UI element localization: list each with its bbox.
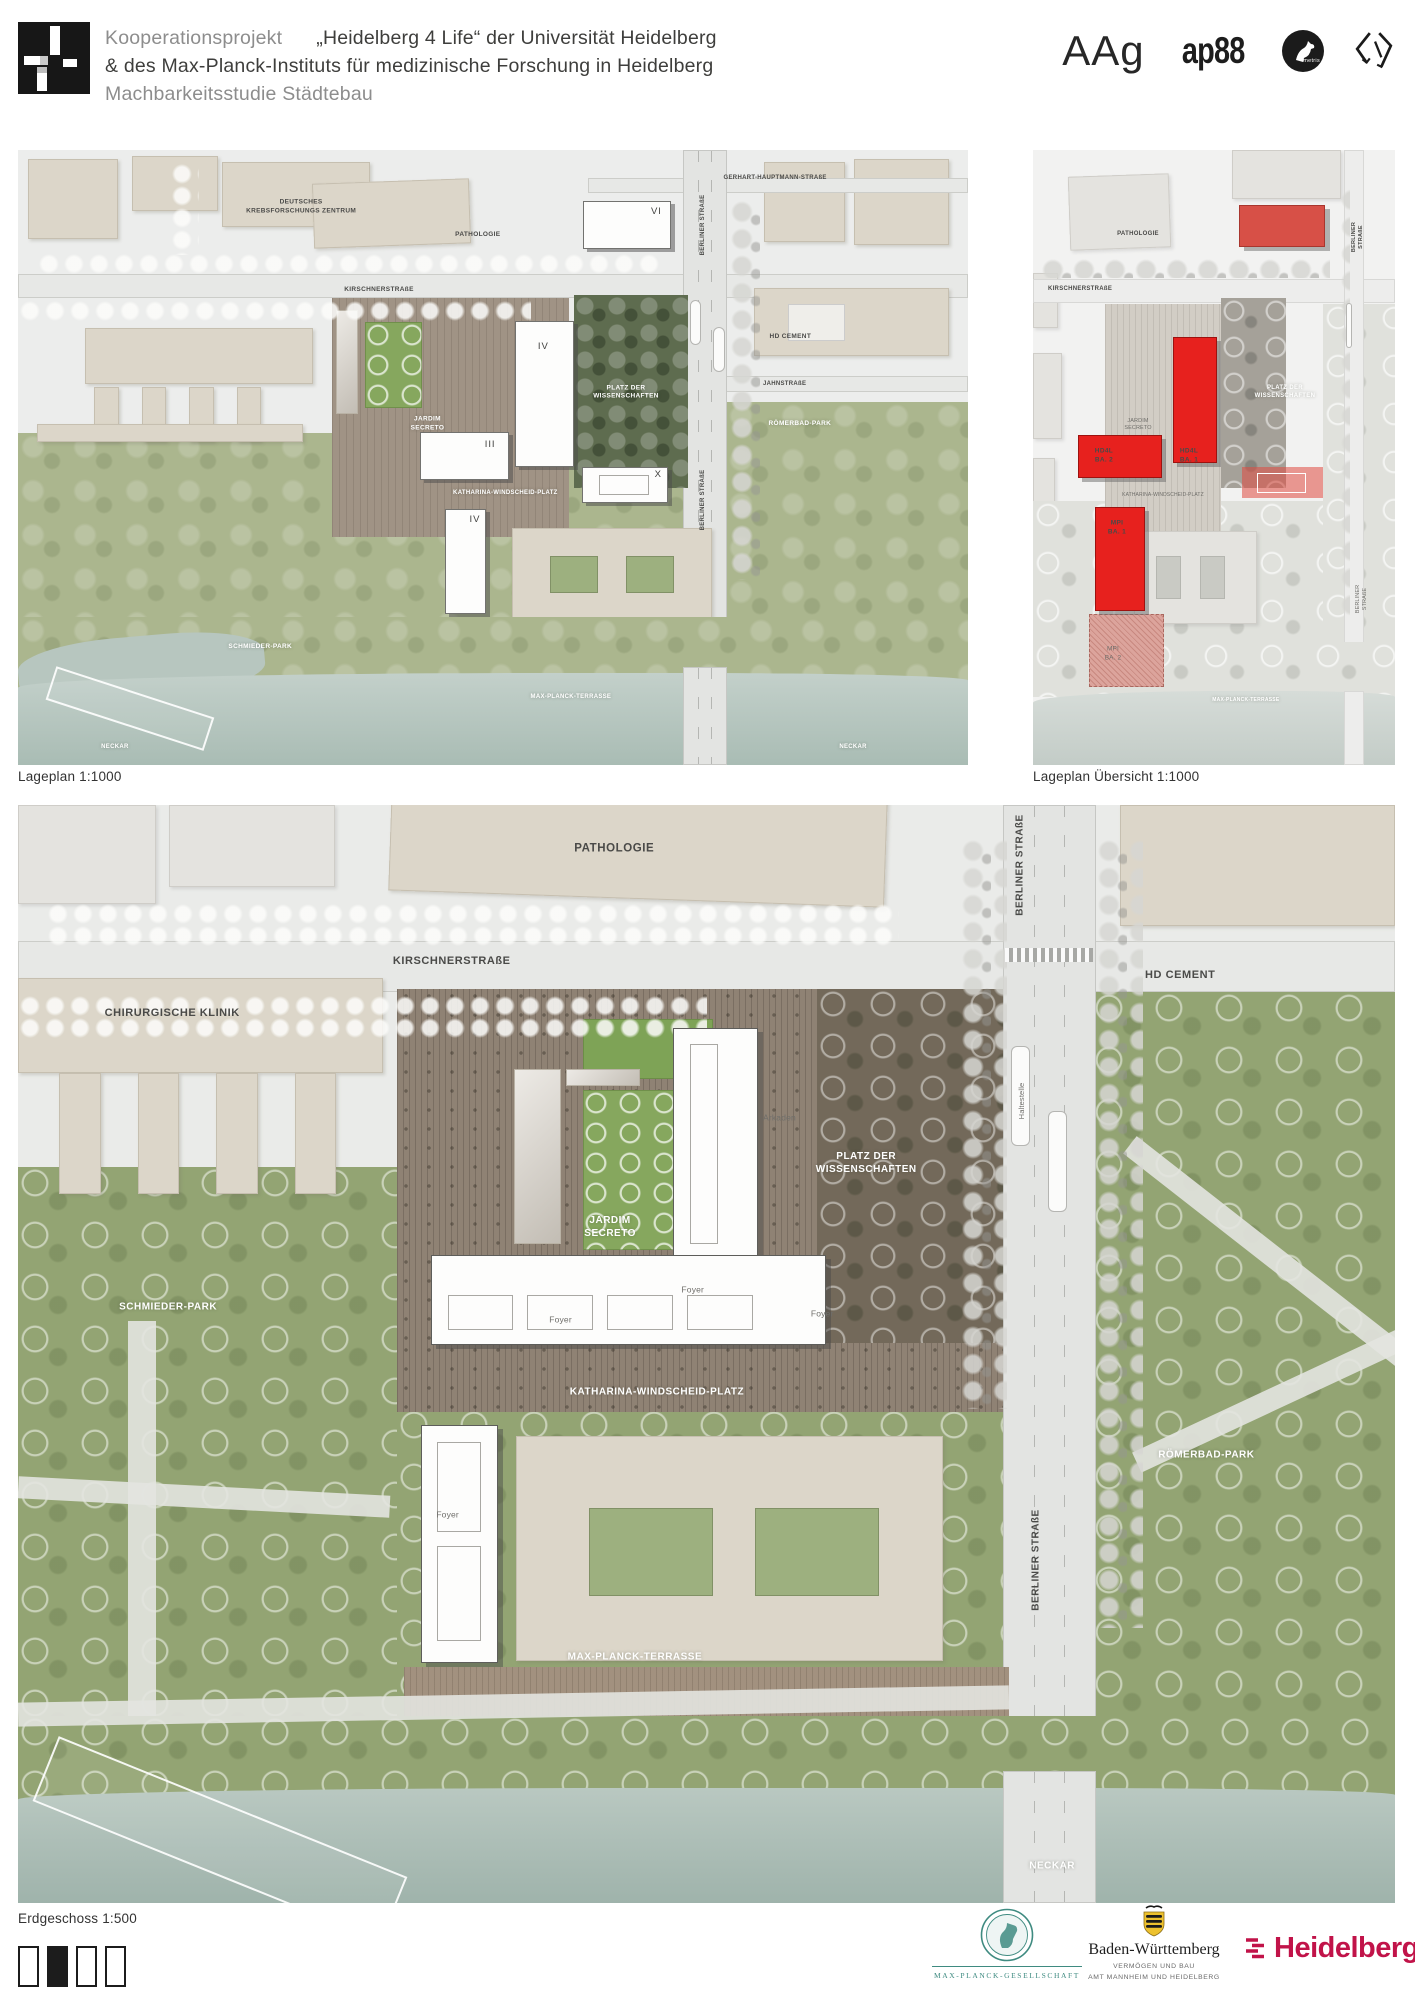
title-line-1: „Heidelberg 4 Life“ der Universität Heid… <box>316 24 716 52</box>
metris-horse-icon <box>1281 29 1325 73</box>
ground-floor-plan: PATHOLOGIEKIRSCHNERSTRAßEBERLINER STRAßE… <box>18 805 1395 1903</box>
map-trees <box>46 902 900 946</box>
map-red2 <box>1239 205 1325 247</box>
map-beige <box>85 328 313 383</box>
header: Kooperationsprojekt „Heidelberg 4 Life“ … <box>105 24 717 108</box>
map-cell <box>687 1295 752 1330</box>
map-cell <box>690 1044 718 1244</box>
map-red <box>1173 337 1217 463</box>
map-road-v <box>1003 1771 1097 1903</box>
title-line-2: & des Max-Planck-Instituts für medizinis… <box>105 52 717 80</box>
map-beige <box>37 424 303 442</box>
map-label: HD4L BA. 2 <box>1095 448 1113 465</box>
metris-label: metris <box>1303 58 1320 64</box>
map-label: BERLINER STRAßE <box>1351 218 1365 255</box>
map-label: GERHART-HAUPTMANN-STRAßE <box>724 175 827 183</box>
map-trees-gray <box>1040 257 1330 278</box>
map-cell <box>607 1295 672 1330</box>
metris-logo: metris <box>1281 29 1325 73</box>
map-label: NECKAR <box>1029 1859 1075 1872</box>
project-label: Kooperationsprojekt <box>105 24 282 52</box>
map-road-v <box>683 667 727 765</box>
sheet-box-3 <box>76 1946 97 1987</box>
map-label: PLATZ DER WISSENSCHAFTEN <box>593 384 659 401</box>
map-label: MPI BA. 2 <box>1105 646 1122 663</box>
bw-logo: Baden-Württemberg VERMÖGEN UND BAU AMT M… <box>1088 1905 1220 1981</box>
map-gcourt <box>1156 556 1181 599</box>
map-pink <box>1089 614 1163 687</box>
map-label: PLATZ DER WISSENSCHAFTEN <box>816 1150 917 1176</box>
map-label: NECKAR <box>839 744 866 752</box>
map-label: CHIRURGISCHE KLINIK <box>105 1005 240 1019</box>
map-label: IV <box>538 341 549 353</box>
map-court <box>550 556 598 593</box>
map-label: JARDIM SECRETO <box>584 1214 636 1240</box>
heidelberg-mark-icon <box>1243 1936 1267 1962</box>
map-path <box>128 1321 156 1716</box>
bw-sub-2: AMT MANNHEIM UND HEIDELBERG <box>1088 1974 1220 1981</box>
sheet-box-4 <box>105 1946 126 1987</box>
mpg-label: MAX-PLANCK-GESELLSCHAFT <box>932 1971 1082 1980</box>
map-platform <box>1049 1112 1066 1211</box>
map-beige <box>138 1073 179 1194</box>
map-new <box>420 432 509 481</box>
bw-title: Baden-Württemberg <box>1088 1941 1220 1959</box>
map-zebra <box>1005 948 1093 962</box>
map-label: Haltestelle <box>1017 1083 1027 1120</box>
subtitle: Machbarkeitsstudie Städtebau <box>105 80 717 108</box>
map-deck-big <box>397 1343 1003 1412</box>
caption-lageplan: Lageplan 1:1000 <box>18 769 122 784</box>
map-red <box>1078 435 1162 478</box>
map-label: HD CEMENT <box>1145 968 1215 982</box>
map-beige <box>59 1073 100 1194</box>
map-label: PATHOLOGIE <box>574 841 654 856</box>
caption-erdgeschoss: Erdgeschoss 1:500 <box>18 1911 137 1926</box>
map-label: MPI BA. 1 <box>1108 520 1126 537</box>
map-label: KATHARINA-WINDSCHEID-PLATZ <box>1122 492 1204 499</box>
map-gable <box>336 310 358 415</box>
map-beige <box>295 1073 336 1194</box>
heidelberg-label: Heidelberg <box>1274 1932 1415 1965</box>
map-outline-w <box>1257 473 1306 493</box>
map-label: BERLINER STRAßE <box>1029 1510 1042 1611</box>
map-beige <box>754 288 949 356</box>
map-cell <box>599 475 649 495</box>
map-graybldg <box>169 805 334 887</box>
map-label: III <box>485 439 496 451</box>
map-label: MAX-PLANCK-TERRASSE <box>531 694 612 702</box>
map-beige <box>1120 805 1395 926</box>
map-gstreet <box>1344 691 1364 765</box>
map-platform <box>1347 304 1351 347</box>
map-label: RÖMERBAD-PARK <box>769 420 832 428</box>
map-trees <box>37 252 664 274</box>
map-trees-gray <box>729 199 761 580</box>
map-label: SCHMIEDER-PARK <box>228 643 292 651</box>
site-plan-1000: DEUTSCHES KREBSFORSCHUNGS ZENTRUMPATHOLO… <box>18 150 968 765</box>
map-label: Foyer <box>549 1314 572 1325</box>
map-label: BERLINER STRAßE <box>700 470 708 531</box>
map-trees-gray <box>960 838 1007 1409</box>
sheet-box-1 <box>18 1946 39 1987</box>
map-label: Foyer <box>436 1510 459 1521</box>
map-cell <box>437 1546 482 1641</box>
map-label: DEUTSCHES KREBSFORSCHUNGS ZENTRUM <box>246 199 356 216</box>
map-graybldg <box>18 805 156 904</box>
map-label: BERLINER STRAßE <box>700 195 708 256</box>
map-jgreen2 <box>365 322 422 408</box>
map-trees-gray <box>1096 838 1143 1629</box>
map-label: JAHNSTRAßE <box>763 381 806 389</box>
map-graybldg <box>1033 353 1062 439</box>
aag-logo: AAg <box>1062 27 1144 75</box>
presentation-board: Kooperationsprojekt „Heidelberg 4 Life“ … <box>0 0 1415 2000</box>
site-plan-overview: PATHOLOGIEKIRSCHNERSTRAßEBERLINER STRAßE… <box>1033 150 1395 765</box>
mpg-logo: MAX-PLANCK-GESELLSCHAFT <box>932 1908 1082 1980</box>
map-court <box>589 1508 713 1596</box>
map-label: JARDIM SECRETO <box>411 416 445 433</box>
map-gable <box>566 1069 640 1087</box>
map-label: MAX-PLANCK-TERRASSE <box>568 1651 703 1664</box>
map-cell <box>448 1295 513 1330</box>
map-gable <box>514 1069 561 1245</box>
caption-uebersicht: Lageplan Übersicht 1:1000 <box>1033 769 1199 784</box>
bw-crest-icon <box>1141 1905 1167 1939</box>
map-label: KATHARINA-WINDSCHEID-PLATZ <box>570 1386 744 1399</box>
map-label: RÖMERBAD-PARK <box>1158 1449 1254 1462</box>
map-label: Foyer <box>681 1285 704 1296</box>
partner-logos: AAg ap88 metris <box>1062 24 1395 78</box>
map-label: KIRSCHNERSTRAßE <box>344 285 414 293</box>
map-beige <box>516 1436 943 1661</box>
map-label: PLATZ DER WISSENSCHAFTEN <box>1255 385 1316 401</box>
map-label: PATHOLOGIE <box>455 231 500 239</box>
project-logo <box>18 22 90 94</box>
map-label: MAX-PLANCK-TERRASSE <box>1212 697 1279 704</box>
ap88-logo: ap88 <box>1181 30 1244 72</box>
map-label: KIRSCHNERSTRAßE <box>1048 286 1112 294</box>
map-label: HD4L BA. 1 <box>1180 448 1198 465</box>
map-trees-gray <box>1339 187 1351 618</box>
map-trees <box>18 299 531 321</box>
map-label: IV <box>469 514 480 526</box>
map-label: VI <box>651 206 662 218</box>
map-court <box>626 556 674 593</box>
map-beige <box>512 528 712 620</box>
map-label: NECKAR <box>101 744 128 752</box>
map-label: JARDIM SECRETO <box>1124 418 1151 432</box>
map-gpark <box>1033 642 1395 697</box>
bw-sub-1: VERMÖGEN UND BAU <box>1088 1963 1220 1970</box>
map-trees <box>170 162 199 254</box>
map-graybldg <box>1232 150 1341 199</box>
map-label: PATHOLOGIE <box>1117 231 1159 239</box>
map-label: KATHARINA-WINDSCHEID-PLATZ <box>453 490 558 498</box>
sheet-index <box>18 1946 126 1987</box>
map-label: HD CEMENT <box>770 333 812 341</box>
map-court <box>755 1508 879 1596</box>
map-beige <box>216 1073 257 1194</box>
map-graybldg <box>1134 531 1257 623</box>
map-label: X <box>655 469 662 481</box>
map-beige <box>854 159 949 245</box>
map-label: Arkaden <box>763 1112 796 1123</box>
map-platform <box>714 328 724 371</box>
bracket-logo-icon <box>1353 30 1395 72</box>
map-label: KIRSCHNERSTRAßE <box>393 954 511 968</box>
heidelberg-logo: Heidelberg <box>1243 1932 1415 1965</box>
map-gcourt <box>1200 556 1225 599</box>
mpg-seal-icon <box>980 1908 1034 1962</box>
map-label: BERLINER STRAßE <box>1355 583 1369 616</box>
map-platform <box>691 301 701 344</box>
sheet-box-2-active <box>47 1946 68 1987</box>
map-label: BERLINER STRAßE <box>1014 815 1027 916</box>
map-label: Foyer <box>811 1309 834 1320</box>
map-beige <box>28 159 118 239</box>
map-label: SCHMIEDER-PARK <box>119 1300 217 1313</box>
mpg-rule <box>932 1966 1082 1967</box>
